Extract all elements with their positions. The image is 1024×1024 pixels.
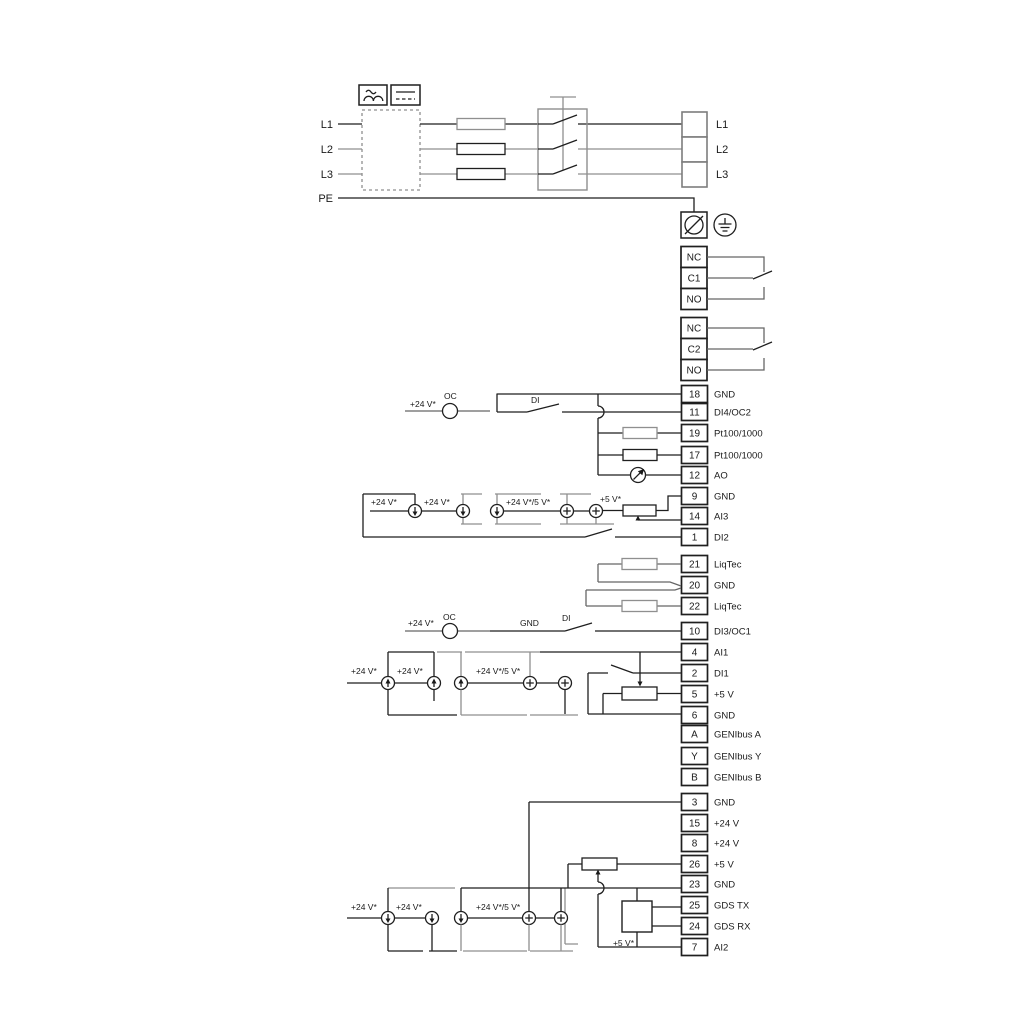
terminal-label: +5 V <box>714 860 734 871</box>
terminal-num: 20 <box>689 581 701 592</box>
label-pe: PE <box>318 193 333 205</box>
gds-sensor-box: +5 V* <box>613 888 681 948</box>
terminal-group-liqtec: 21LiqTec 20GND 22LiqTec <box>586 556 742 615</box>
terminal-num: 7 <box>692 943 698 954</box>
pe-wire <box>338 198 694 212</box>
terminal-num: Y <box>691 752 698 763</box>
terminal-num: 11 <box>689 408 700 419</box>
wiring-diagram: L1 L2 L3 PE <box>0 0 1024 1024</box>
current-source-icon <box>455 677 468 690</box>
v245-label: +24 V*/5 V* <box>476 902 521 912</box>
terminal-num: 1 <box>692 533 698 544</box>
current-source-icon <box>426 912 439 925</box>
fuse-l1 <box>457 119 505 130</box>
terminal-label: GENIbus A <box>714 730 762 741</box>
terminal-num: 10 <box>689 627 701 638</box>
current-source-icon <box>409 505 422 518</box>
current-source-icon <box>457 505 470 518</box>
terminal-label: AI2 <box>714 943 728 954</box>
ac-symbol-icon <box>359 85 387 105</box>
terminal-label: GDS TX <box>714 901 750 912</box>
terminal-num: 21 <box>689 560 701 571</box>
terminal-label: Pt100/1000 <box>714 429 763 440</box>
terminal-label: GENIbus B <box>714 773 762 784</box>
plus-source-icon <box>524 677 537 690</box>
relay1-c1: C1 <box>688 274 701 285</box>
oc-input-row-11: +24 V* OC DI <box>405 391 681 419</box>
gnd3-wire <box>529 802 681 912</box>
relay-1: NC C1 NO <box>681 247 772 310</box>
liqtec-sensor-1 <box>622 559 657 570</box>
terminal-label: DI3/OC1 <box>714 627 751 638</box>
terminal-label: DI4/OC2 <box>714 408 751 419</box>
terminal-num: B <box>691 773 698 784</box>
plus-source-icon <box>523 912 536 925</box>
current-source-icon <box>382 677 395 690</box>
current-source-icon <box>428 677 441 690</box>
v24-label: +24 V* <box>396 902 422 912</box>
plus-source-icon <box>590 505 603 518</box>
emc-filter-box <box>362 110 420 190</box>
label-l1-out: L1 <box>716 119 728 131</box>
power-terminal-block: L1 L2 L3 <box>682 112 728 187</box>
label-l2-out: L2 <box>716 144 728 156</box>
v245-label: +24 V*/5 V* <box>476 666 521 676</box>
label-l3-in: L3 <box>321 169 333 181</box>
relay2-c2: C2 <box>688 345 701 356</box>
terminal-num: 19 <box>689 429 701 440</box>
relay-2: NC C2 NO <box>681 318 772 381</box>
main-switch <box>538 97 587 190</box>
di-label: DI <box>562 613 571 623</box>
terminal-num: 22 <box>689 602 701 613</box>
terminal-num: 15 <box>689 819 701 830</box>
relay1-nc: NC <box>687 253 701 264</box>
switch-contact <box>490 623 681 631</box>
current-source-icon <box>491 505 504 518</box>
terminal-label: DI1 <box>714 669 729 680</box>
terminal-num: 14 <box>689 512 701 523</box>
terminal-label: GDS RX <box>714 922 751 933</box>
oc-circle-icon <box>443 624 458 639</box>
oc-label: OC <box>444 391 457 401</box>
oc-circle-icon <box>443 404 458 419</box>
screw-terminal-icon <box>681 212 707 238</box>
v24-label: +24 V* <box>371 497 397 507</box>
terminal-label: GND <box>714 492 735 503</box>
terminal-label: DI2 <box>714 533 729 544</box>
terminal-label: AI1 <box>714 648 728 659</box>
oc-input-row-10: +24 V* OC GND DI <box>405 612 681 639</box>
terminal-label: GND <box>714 581 735 592</box>
terminal-label: LiqTec <box>714 560 742 571</box>
terminal-label: GND <box>714 880 735 891</box>
terminal-group-io: 10DI3/OC1 4AI1 2DI1 5+5 V 6GND AGENIbus … <box>682 623 763 786</box>
liqtec-sensor-loops <box>586 559 681 612</box>
v24-label: +24 V* <box>410 399 436 409</box>
terminal-num: 8 <box>692 839 698 850</box>
terminal-label: GND <box>714 711 735 722</box>
terminal-group-1: 18GND 11DI4/OC2 19Pt100/1000 17Pt100/100… <box>682 386 763 546</box>
changeover-contact-1 <box>707 257 772 299</box>
di1-switch-wire <box>588 665 681 673</box>
sensor-branch-lines <box>598 394 681 483</box>
terminal-label: LiqTec <box>714 602 742 613</box>
di2-switch-wire <box>363 529 681 537</box>
fuses <box>457 119 505 180</box>
terminal-num: A <box>691 730 698 741</box>
terminal-num: 24 <box>689 922 701 933</box>
relay2-nc: NC <box>687 324 701 335</box>
v24-label: +24 V* <box>424 497 450 507</box>
terminal-group-bottom: 3GND 15+24 V 8+24 V 26+5 V 23GND 25GDS T… <box>682 794 752 956</box>
terminal-num: 5 <box>692 690 698 701</box>
relay1-no: NO <box>687 295 702 306</box>
terminal-num: 23 <box>689 880 701 891</box>
pt100-resistor-1 <box>623 428 657 439</box>
terminal-num: 17 <box>689 451 701 462</box>
earth-ground-icon <box>714 214 736 236</box>
switch-contact <box>497 404 681 412</box>
terminal-label: AO <box>714 471 728 482</box>
terminal-label: Pt100/1000 <box>714 451 763 462</box>
terminal-num: 2 <box>692 669 698 680</box>
di-label: DI <box>531 395 540 405</box>
v24-label: +24 V* <box>408 618 434 628</box>
terminal-label: +24 V <box>714 839 740 850</box>
current-source-icon <box>382 912 395 925</box>
terminal-num: 4 <box>692 648 698 659</box>
liqtec-sensor-2 <box>622 601 657 612</box>
plus-source-icon <box>555 912 568 925</box>
label-l3-out: L3 <box>716 169 728 181</box>
oc-label: OC <box>443 612 456 622</box>
label-l2-in: L2 <box>321 144 333 156</box>
terminal-label: +24 V <box>714 819 740 830</box>
label-l1-in: L1 <box>321 119 333 131</box>
ai3-supply-group: +24 V* +24 V* +24 V*/5 V* +5 V* <box>363 494 681 537</box>
v5-label: +5 V* <box>613 938 635 948</box>
fuse-l3 <box>457 169 505 180</box>
pt100-resistor-2 <box>623 450 657 461</box>
terminal-num: 6 <box>692 711 698 722</box>
v24-label: +24 V* <box>351 666 377 676</box>
v5-label: +5 V* <box>600 494 622 504</box>
terminal-num: 25 <box>689 901 701 912</box>
plus-source-icon <box>561 505 574 518</box>
v24-label: +24 V* <box>351 902 377 912</box>
terminal-num: 26 <box>689 860 701 871</box>
ai1-supply-group: +24 V* +24 V* +24 V*/5 V* <box>347 652 681 715</box>
v245-label: +24 V*/5 V* <box>506 497 551 507</box>
terminal-label: +5 V <box>714 690 734 701</box>
terminal-label: GND <box>714 798 735 809</box>
terminal-num: 9 <box>692 492 698 503</box>
terminal-num: 12 <box>689 471 701 482</box>
mains-wires <box>338 124 682 174</box>
relay2-no: NO <box>687 366 702 377</box>
dc-symbol-icon <box>391 85 420 105</box>
power-input-labels: L1 L2 L3 PE <box>318 119 333 205</box>
terminal-label: AI3 <box>714 512 728 523</box>
plus-source-icon <box>559 677 572 690</box>
fuse-l2 <box>457 144 505 155</box>
ao-meter-icon <box>631 468 646 483</box>
current-source-icon <box>455 912 468 925</box>
terminal-num: 3 <box>692 798 698 809</box>
ai2-supply-group: +24 V* +24 V* +24 V*/5 V* +5 V* <box>347 802 681 951</box>
terminal-num: 18 <box>689 390 701 401</box>
v24-label: +24 V* <box>397 666 423 676</box>
terminal-label: GENIbus Y <box>714 752 762 763</box>
terminal-label: GND <box>714 390 735 401</box>
changeover-contact-2 <box>707 328 772 370</box>
potentiometer <box>603 652 681 714</box>
gnd-label: GND <box>520 618 539 628</box>
potentiometer <box>623 496 681 521</box>
